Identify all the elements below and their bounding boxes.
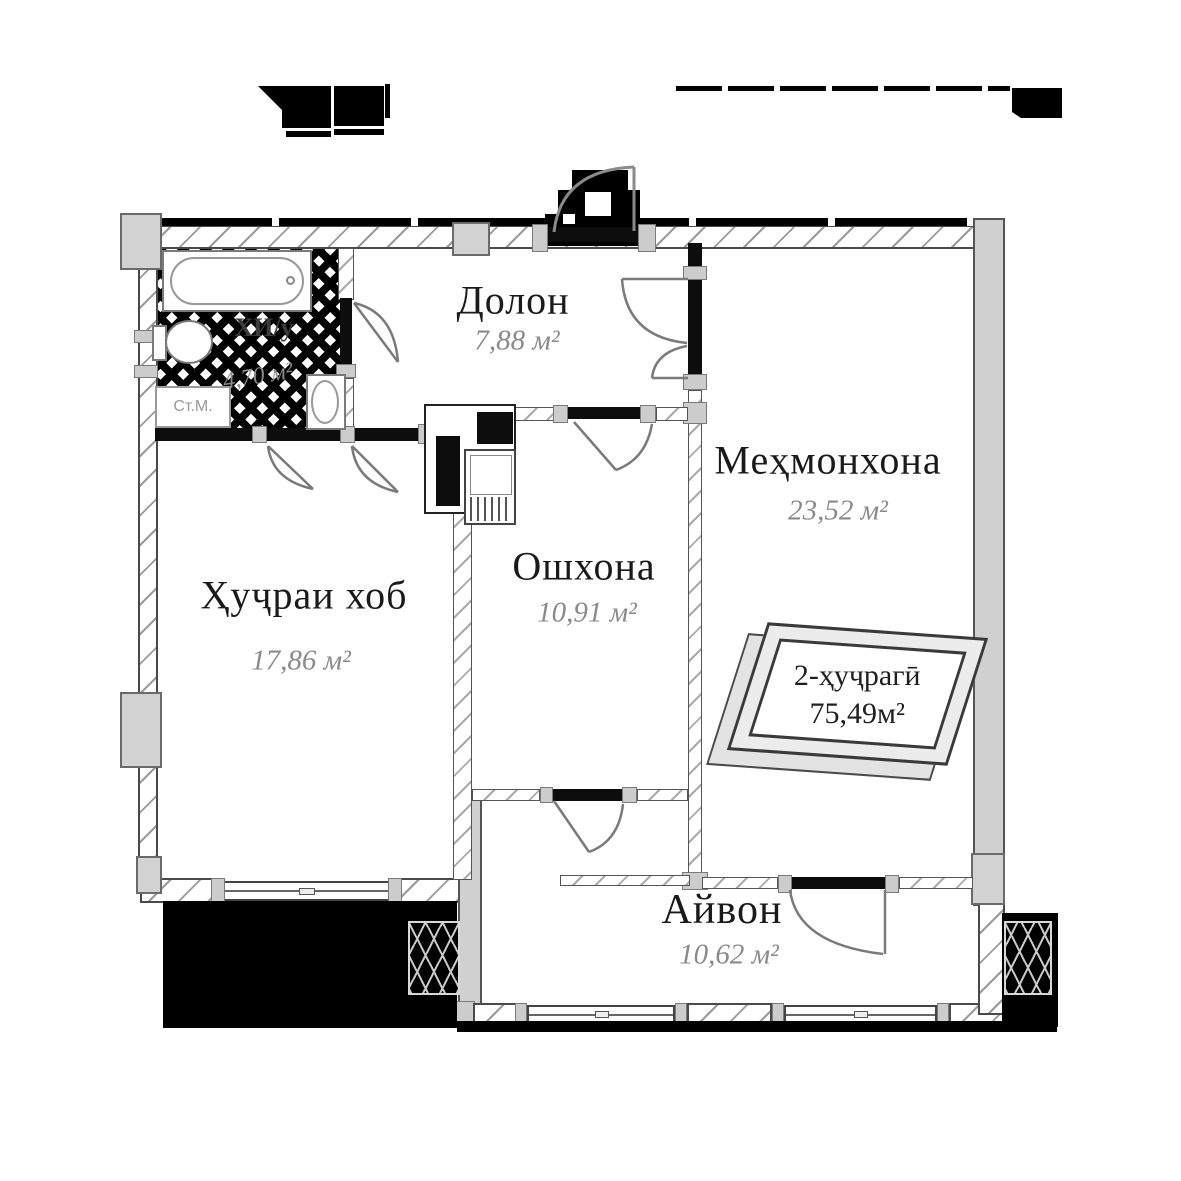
partition-living-lower — [688, 390, 702, 877]
wall-kitchen-bottom-left — [472, 789, 540, 801]
wall-connector — [683, 374, 707, 390]
door-arc-bedroom-left — [268, 446, 313, 489]
area-stamp-inner: 2-ҳуҷрагӣ 75,49м² — [748, 638, 966, 749]
bathtub — [162, 250, 312, 312]
room-area-dolon: 7,88 м² — [474, 325, 559, 358]
bathtub-drain — [286, 276, 295, 285]
room-area-ayvon: 10,62 м² — [679, 939, 779, 972]
room-label-oshkhona: Ошхона — [512, 543, 655, 590]
room-area-mehmonkhona: 23,52 м² — [788, 495, 888, 528]
wall-kitchen-bottom-right — [637, 789, 688, 801]
wall-connector — [683, 266, 707, 280]
column-left — [120, 692, 162, 768]
mask-top-left-triangle — [258, 86, 284, 112]
mask-top-left-b — [334, 86, 384, 126]
room-label-bedroom: Ҳуҷраи хоб — [201, 572, 408, 619]
door-jamb — [540, 787, 553, 803]
stove-grill — [470, 497, 511, 521]
room-label-bathroom: ХИ/у — [234, 313, 293, 343]
area-stamp: 2-ҳуҷрагӣ 75,49м² — [727, 622, 988, 765]
bathtub-basin — [170, 257, 304, 305]
door-jamb — [553, 405, 568, 423]
room-label-ayvon: Айвон — [662, 886, 783, 934]
wall-kitchen-top-right — [656, 407, 688, 421]
room-area-bedroom: 17,86 м² — [251, 645, 351, 678]
wall-right-gray — [973, 218, 1005, 906]
door-leaf-entrance — [547, 227, 639, 242]
door-leaf-kitchen-top — [568, 407, 640, 419]
door-arc-balcony — [790, 890, 885, 954]
column-top-left — [120, 213, 162, 270]
door-jamb — [640, 405, 656, 423]
door-leaf-bathroom — [354, 303, 398, 362]
door-jamb — [622, 787, 637, 803]
window-handle — [854, 1011, 868, 1018]
door-jamb — [532, 224, 548, 252]
stamp-text: 2-ҳуҷрагӣ 75,49м² — [794, 656, 921, 731]
mask-bottom-strip — [457, 1021, 1057, 1032]
neighbour-balcony-hatch-left — [408, 921, 460, 995]
door-leaf-balcony — [792, 877, 885, 889]
toilet-bowl — [165, 320, 213, 364]
door-arc-kitchen-bottom — [554, 801, 623, 852]
mask-entrance-notch-small — [563, 214, 575, 224]
mask-top-right-block — [1012, 88, 1062, 118]
door-jamb — [885, 875, 899, 893]
washing-machine-label: Ст.М. — [173, 398, 212, 416]
stamp-line1: 2-ҳуҷрагӣ — [794, 656, 921, 694]
wall-bath-door-section — [340, 298, 352, 368]
stove — [464, 449, 516, 525]
wall-balcony-right — [978, 903, 1005, 1015]
door-arc-kitchen-top — [574, 422, 652, 470]
door-jamb — [638, 224, 656, 252]
sink — [306, 374, 346, 430]
floor-plan: Ст.М. Долон 7,88 м² Меҳмонхона 23,52 м² … — [0, 0, 1181, 1181]
sink-basin — [311, 380, 339, 424]
window-bedroom — [223, 881, 390, 901]
mask-top-left-strip — [286, 131, 331, 137]
vent-shaft — [436, 436, 460, 506]
mask-dashed-line — [676, 86, 1010, 91]
wall-bath-bottom — [155, 428, 437, 441]
column-top-center — [452, 222, 490, 256]
door-jamb — [252, 426, 267, 443]
window-handle — [595, 1011, 609, 1018]
room-label-mehmonkhona: Меҳмонхона — [714, 437, 941, 484]
window-jamb — [388, 878, 402, 903]
room-area-oshkhona: 10,91 м² — [537, 597, 637, 630]
mask-top-left-a — [282, 86, 331, 128]
balcony-ledge — [560, 875, 690, 886]
mask-entrance-notch — [585, 192, 611, 216]
door-arc-bedroom-right — [352, 446, 398, 492]
mask-top-left-strip — [334, 129, 384, 135]
neighbour-balcony-hatch-right — [1004, 921, 1052, 995]
stamp-line2: 75,49м² — [794, 694, 921, 732]
door-arc-bathroom — [354, 303, 398, 362]
balcony-column — [971, 853, 1005, 905]
wall-bath-right-upper — [338, 248, 354, 300]
door-arc-living-large — [622, 279, 688, 343]
stove-top — [470, 455, 512, 495]
mask-top-left-bar — [385, 84, 390, 118]
wall-left — [138, 218, 158, 880]
vent-shaft — [477, 412, 513, 444]
partition-living-doors — [688, 280, 702, 378]
door-leaf-kitchen-bottom — [553, 789, 622, 801]
wall-balcony-top-right — [899, 877, 973, 889]
window-jamb — [211, 878, 225, 903]
wall-connector — [134, 365, 158, 378]
washing-machine: Ст.М. — [155, 386, 231, 428]
corner-column — [136, 856, 162, 894]
room-label-dolon: Долон — [456, 277, 569, 324]
window-handle — [299, 888, 315, 895]
